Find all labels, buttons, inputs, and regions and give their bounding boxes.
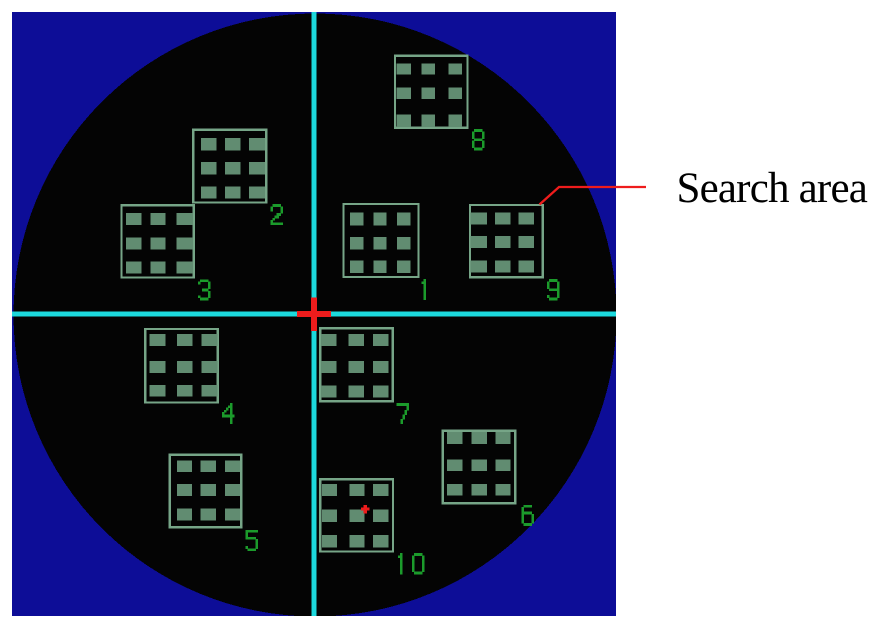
svg-text:Search area: Search area [677,165,868,212]
